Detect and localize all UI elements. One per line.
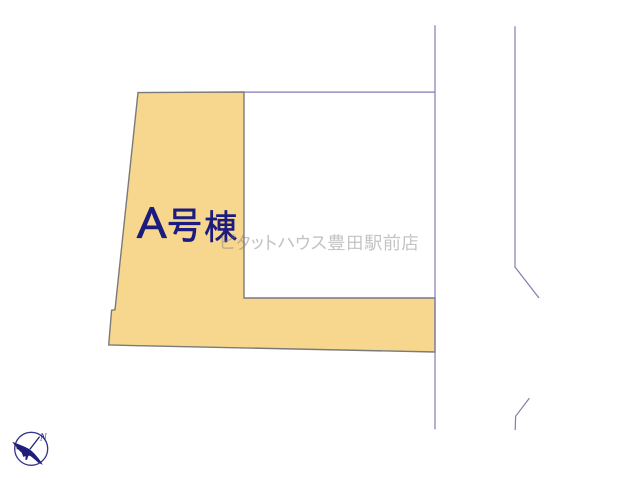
svg-text:N: N (39, 432, 48, 443)
